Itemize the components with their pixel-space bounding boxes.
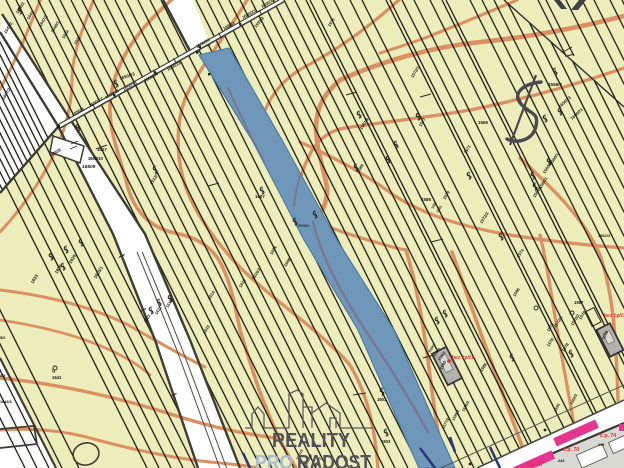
svg-text:149: 149 — [598, 443, 604, 447]
svg-text:1603: 1603 — [381, 439, 391, 444]
svg-text:č.p. 67: č.p. 67 — [527, 462, 543, 468]
svg-text:16509: 16509 — [82, 164, 96, 170]
svg-text:REALITY: REALITY — [272, 430, 351, 452]
svg-text:1562/2: 1562/2 — [598, 233, 611, 238]
svg-text:č.p. 74: č.p. 74 — [600, 433, 616, 439]
svg-text:bez čp/če: bez čp/če — [604, 313, 624, 319]
svg-text:5/2: 5/2 — [0, 336, 5, 340]
svg-text:1650/10: 1650/10 — [88, 156, 104, 161]
svg-text:PRO: PRO — [255, 452, 293, 468]
svg-text:1607: 1607 — [255, 194, 265, 199]
svg-text:243: 243 — [558, 459, 564, 463]
svg-text:1617: 1617 — [97, 147, 107, 152]
svg-text:bez čp/če: bez čp/če — [452, 355, 475, 361]
svg-text:1559/2: 1559/2 — [548, 82, 562, 87]
svg-text:8/3: 8/3 — [0, 374, 5, 378]
svg-text:1503/1: 1503/1 — [297, 223, 310, 228]
svg-text:1601: 1601 — [377, 397, 387, 402]
svg-text:RADOST: RADOST — [297, 452, 371, 468]
svg-text:1641: 1641 — [52, 375, 62, 380]
svg-text:1566: 1566 — [478, 120, 489, 125]
svg-text:1585: 1585 — [421, 197, 432, 202]
svg-text:1643/3: 1643/3 — [0, 400, 12, 404]
svg-text:1567: 1567 — [574, 300, 584, 305]
svg-text:č.p. 70: č.p. 70 — [563, 447, 579, 453]
